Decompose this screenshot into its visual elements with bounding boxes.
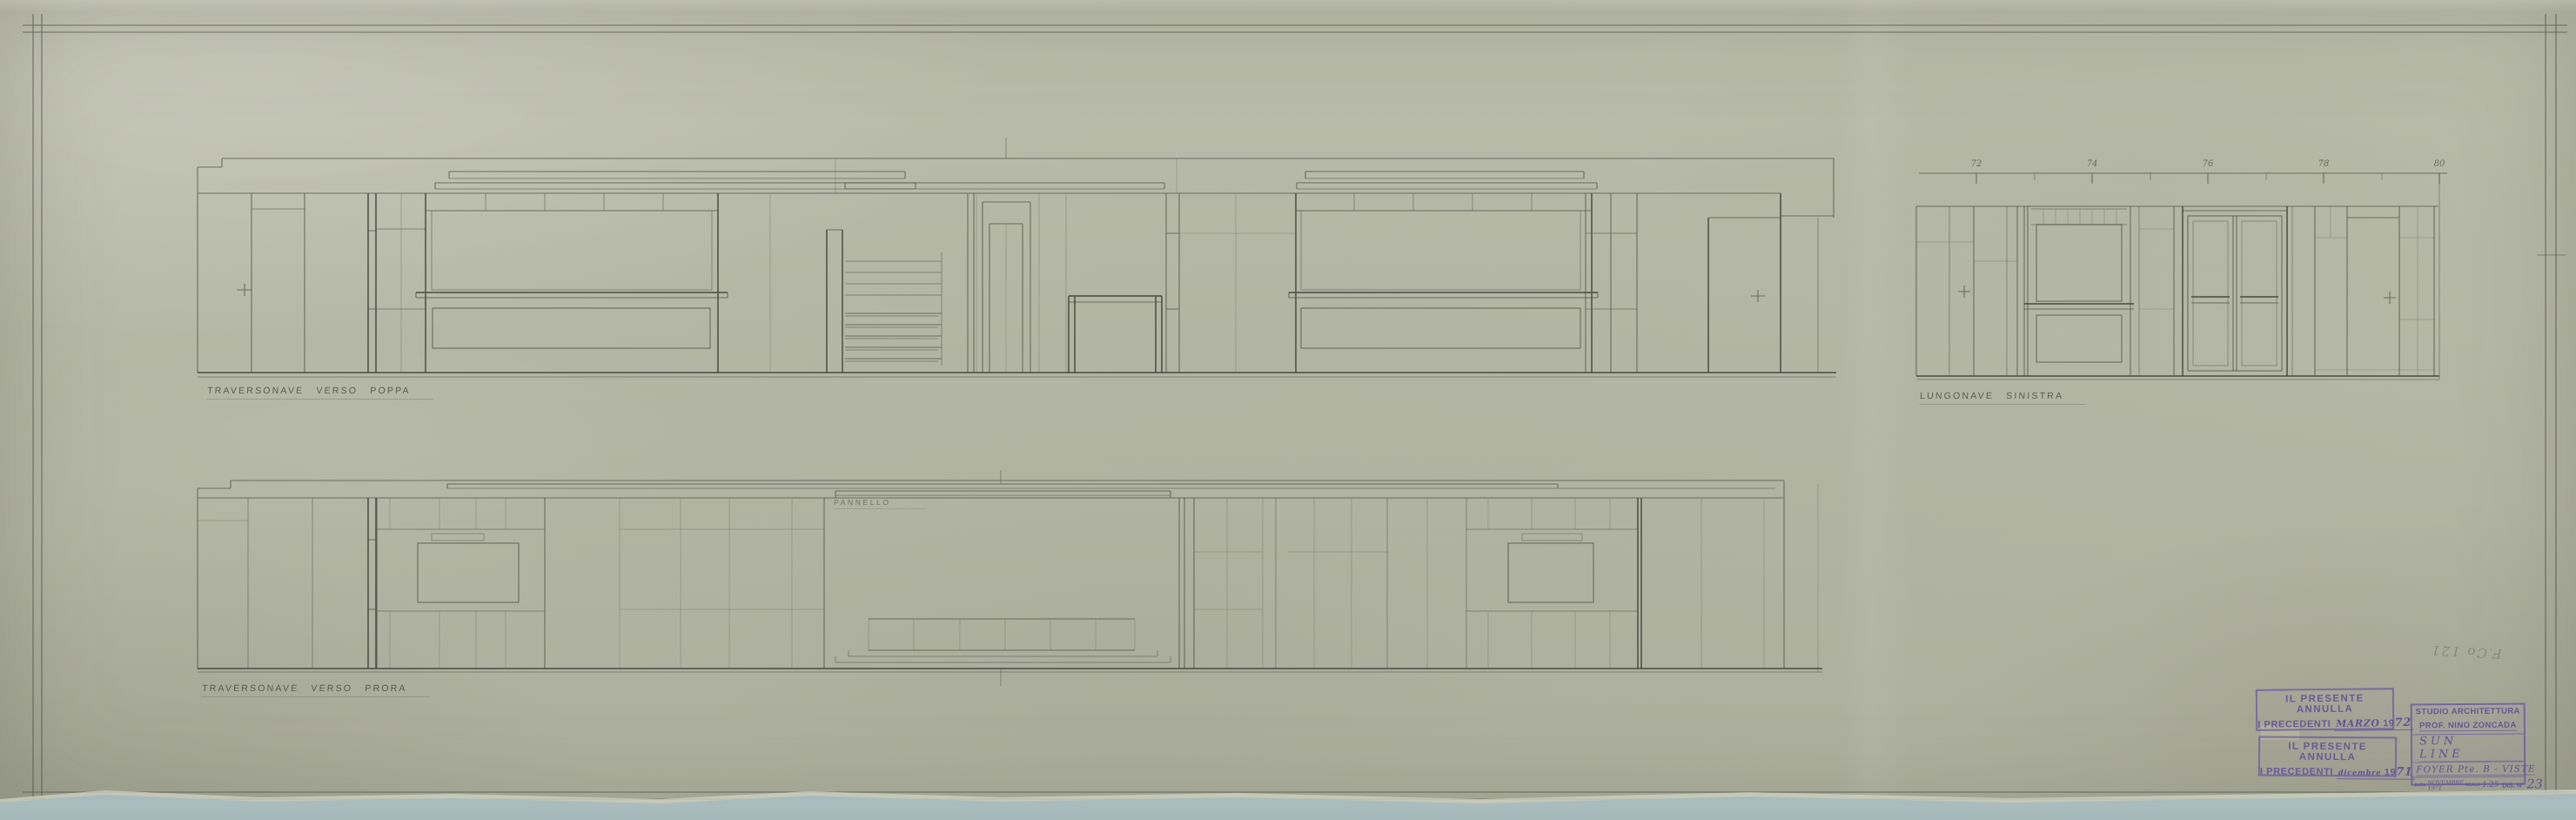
dis-label: DIS. N° [2502,781,2524,789]
title-block: STUDIO ARCHITETTURA PROF. NINO ZONCADA S… [2411,703,2526,786]
title-block-project-row: SUN LINE [2412,735,2524,763]
stamp-line2: I PRECEDENTI dicembre 1971 [2260,764,2395,778]
data-label: DATA [2414,783,2425,788]
drawing-subject: FOYER Pte. B - VISTE [2416,763,2536,776]
frame-number-80: 80 [2428,159,2451,169]
stamp-annulla-1972: IL PRESENTE ANNULLA I PRECEDENTI MARZO 1… [2256,688,2394,731]
stamp-line1: IL PRESENTE ANNULLA [2260,741,2395,763]
title-block-subject-row: FOYER Pte. B - VISTE [2412,762,2524,777]
caption-side-elevation: LUNGONAVE SINISTRA [1920,391,2087,405]
stamp-month-hand: dicembre [2338,769,2381,777]
date-year: 1971 [2427,785,2463,790]
scala-label: SCALA [2465,783,2480,787]
stamp-year-hand: 72 [2395,716,2412,729]
stamp-annulla-1971: IL PRESENTE ANNULLA I PRECEDENTI dicembr… [2258,736,2397,776]
stamp-month-hand: MARZO [2336,717,2380,729]
drawing-sheet: TRAVERSONAVE VERSO POPPA LUNGONAVE SINIS… [0,0,2576,820]
architect-name: PROF. NINO ZONCADA [2419,721,2517,732]
stamp-year-print: 19 [2385,767,2397,777]
studio-name: STUDIO ARCHITETTURA [2414,707,2522,717]
panel-annotation: PANNELLO [834,498,926,509]
stamp-line2: I PRECEDENTI MARZO 1972 [2257,716,2392,731]
caption-top-elevation: TRAVERSONAVE VERSO POPPA [207,386,433,400]
side-elevation-linework [1916,173,2447,380]
date-value: NOVEMBRE 1971 [2427,780,2464,790]
stamp-prefix: I PRECEDENTI [2257,719,2331,730]
stamp-line1: IL PRESENTE ANNULLA [2257,693,2392,716]
scale-value: 1:25 [2482,781,2499,790]
bottom-elevation-linework [198,470,1822,686]
frame-number-72: 72 [1965,159,1988,169]
drawing-number: 23 [2526,777,2543,791]
caption-bottom-elevation: TRAVERSONAVE VERSO PRORA [202,683,430,697]
stamp-year-print: 19 [2383,718,2395,729]
top-elevation-linework [198,138,1836,377]
project-name: SUN LINE [2419,735,2524,763]
title-block-studio-row: STUDIO ARCHITETTURA PROF. NINO ZONCADA [2412,705,2524,736]
frame-number-76: 76 [2197,159,2219,169]
frame-number-74: 74 [2081,159,2103,169]
frame-number-78: 78 [2312,159,2335,169]
stamp-prefix: I PRECEDENTI [2260,766,2333,777]
